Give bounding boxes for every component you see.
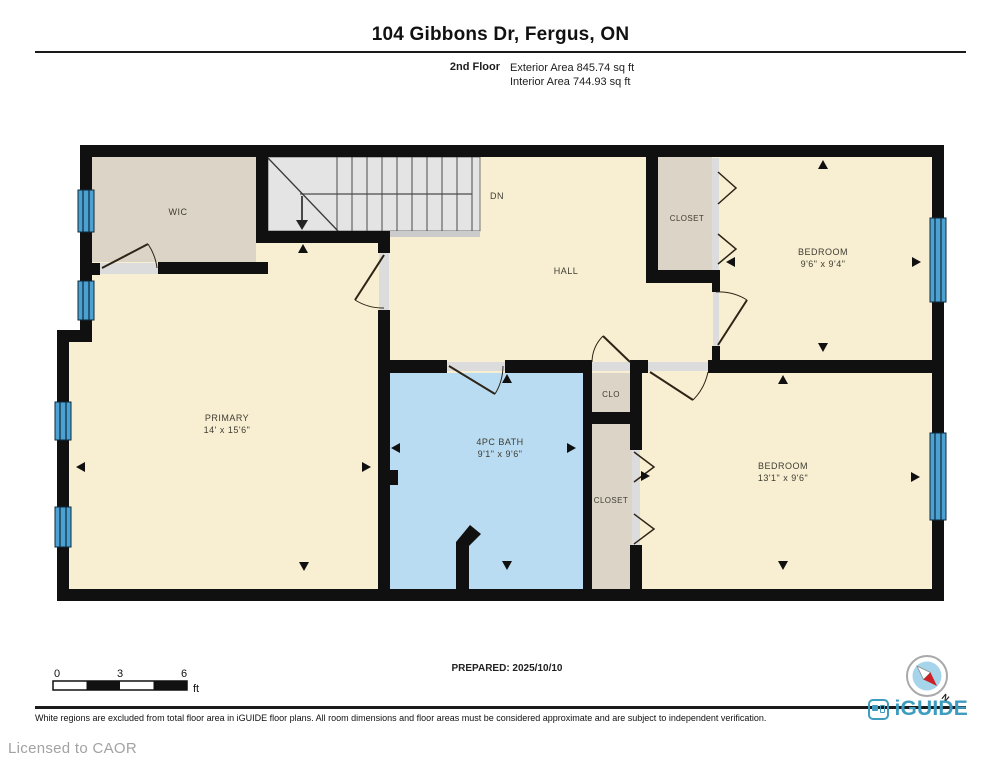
wall-segment [57,330,69,601]
iguide-logo-text: iGUIDE [894,697,968,721]
room-dims-bedroom-top: 9'6" x 9'4" [801,259,846,269]
wall-segment [378,231,390,253]
room-label-wic: WIC [169,207,188,217]
floor-plan: WIC DN HALL CLOSET BEDROOM 9'6" x 9'4" P… [55,145,946,601]
room-bath-floor [390,373,583,589]
window [930,433,946,520]
room-label-bedroom-top: BEDROOM [798,247,848,257]
iguide-logo: iGUIDE [868,697,968,721]
room-closet-mid-floor [592,424,632,589]
staircase [268,157,480,237]
wall-segment [712,346,720,373]
closet-mid-track [632,450,640,545]
room-label-bath: 4PC BATH [476,437,523,447]
window [930,218,946,302]
wall-segment [256,157,268,243]
stair-label-dn: DN [490,191,504,201]
wall-segment [262,231,384,243]
wall-segment [378,310,390,595]
scale-tick-3: 3 [117,668,123,680]
room-dims-primary: 14' x 15'6" [204,425,251,435]
wall-segment [158,262,268,274]
window [78,281,94,320]
room-label-primary: PRIMARY [205,413,249,423]
scale-tick-6: 6 [181,668,187,680]
wall-segment [708,360,932,373]
iguide-logo-icon [868,699,889,720]
bedroom-bottom-door-opening [648,362,708,371]
wall-segment [932,145,944,601]
scale-bar: 0 3 6 ft [53,668,199,695]
room-label-closet-top: CLOSET [670,214,704,223]
wall-segment [646,270,720,283]
bedroom-top-door-opening [713,290,719,346]
wall-segment [583,360,592,589]
window [55,402,71,440]
room-dims-bath: 9'1" x 9'6" [478,449,523,459]
wall-segment [384,360,447,373]
license-note: Licensed to CAOR [8,740,137,757]
floor-plan-page: 104 Gibbons Dr, Fergus, ON 2nd Floor Ext… [0,0,1001,768]
window [78,190,94,232]
wall-segment [57,589,944,601]
wall-segment [80,263,100,275]
clo-door-opening [592,362,630,371]
closet-top-track [712,158,719,270]
wall-segment [712,283,720,292]
scale-unit: ft [193,683,199,695]
footer-disclaimer: White regions are excluded from total fl… [35,713,835,723]
wall-segment [390,470,398,485]
wall-segment [646,157,658,283]
wall-segment [630,360,642,450]
window [55,507,71,547]
stair-landing-edge [384,231,480,237]
footer-divider [35,706,966,709]
wall-segment [80,145,944,157]
room-label-clo: CLO [602,390,620,399]
scale-tick-0: 0 [54,668,60,680]
room-label-hall: HALL [554,266,579,276]
floor-plan-canvas: WIC DN HALL CLOSET BEDROOM 9'6" x 9'4" P… [0,0,1001,768]
room-label-closet-mid: CLOSET [594,496,628,505]
prepared-date: PREPARED: 2025/10/10 [357,663,657,674]
wall-segment [505,360,592,373]
room-dims-bedroom-bottom: 13'1" x 9'6" [758,473,808,483]
wall-segment [630,545,642,589]
room-label-bedroom-bottom: BEDROOM [758,461,808,471]
